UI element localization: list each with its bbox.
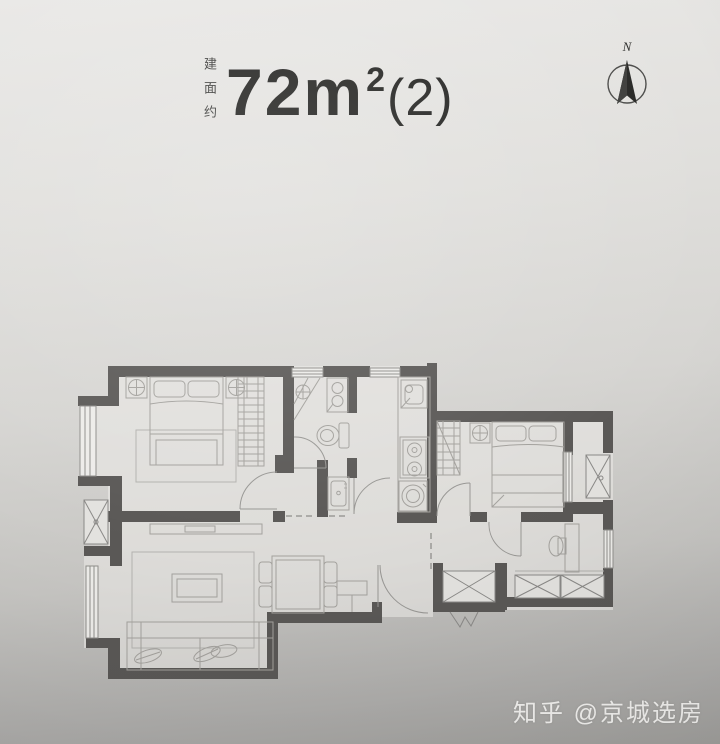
window-kitchen-top	[370, 368, 400, 377]
window-bedroom1-left	[80, 406, 96, 476]
entry-threshold-mark	[450, 612, 478, 627]
ac-platform-left-icon	[84, 500, 108, 544]
window-study-right	[604, 530, 613, 568]
storage-cabinet-icons	[515, 571, 604, 598]
entry-closet-icon	[443, 571, 495, 602]
floorplan-photo-page: 建面约 72m2(2) N	[0, 0, 720, 744]
ac-platform-right-icon	[586, 455, 610, 498]
window-bathroom-top	[292, 368, 323, 377]
window-living-left	[86, 566, 98, 638]
watermark-text: 知乎 @京城选房	[513, 693, 704, 728]
floorplan-drawing	[0, 0, 720, 744]
